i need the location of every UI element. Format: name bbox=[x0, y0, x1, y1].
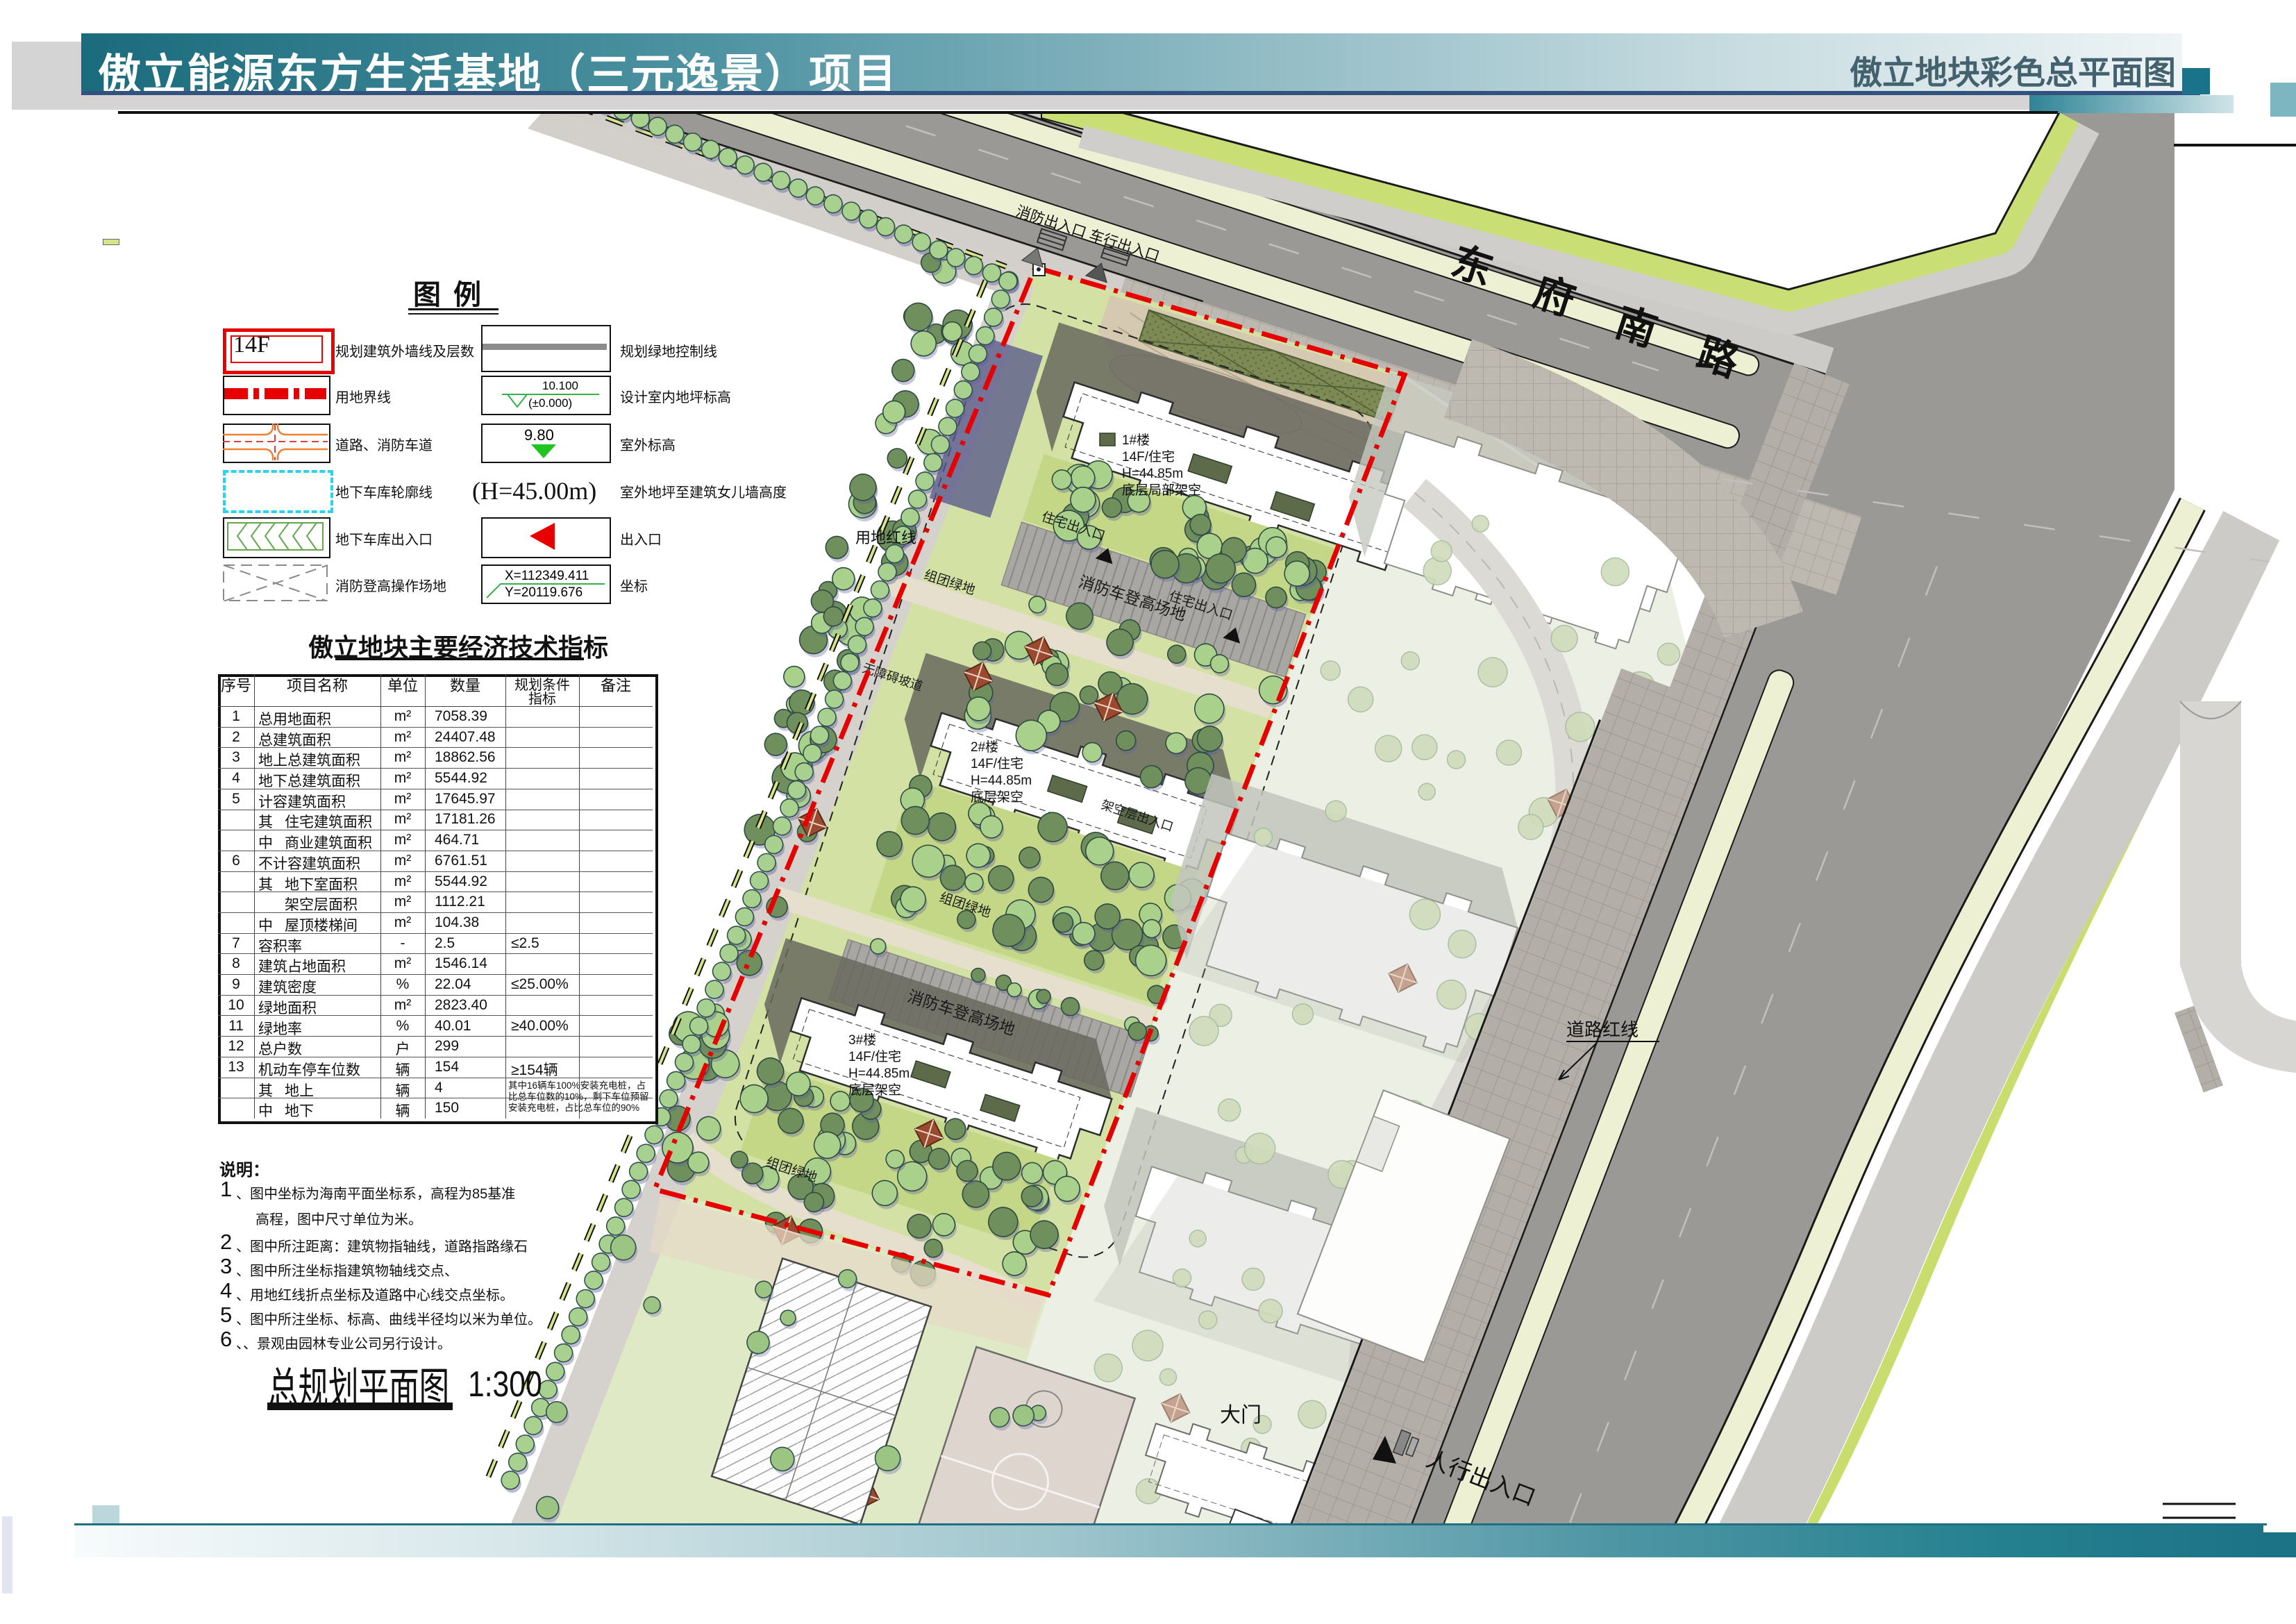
svg-text:14F/住宅: 14F/住宅 bbox=[848, 1049, 901, 1064]
svg-text:14F/住宅: 14F/住宅 bbox=[1122, 449, 1175, 464]
svg-text:大门: 大门 bbox=[1220, 1404, 1262, 1427]
svg-text:9.80: 9.80 bbox=[524, 426, 554, 444]
svg-text:X=112349.411: X=112349.411 bbox=[505, 569, 589, 583]
svg-text:2#楼: 2#楼 bbox=[971, 739, 998, 755]
svg-text:用地红线: 用地红线 bbox=[855, 529, 916, 546]
svg-text:(±0.000): (±0.000) bbox=[528, 396, 572, 410]
svg-text:14F/住宅: 14F/住宅 bbox=[971, 756, 1023, 771]
svg-text:底层架空: 底层架空 bbox=[971, 789, 1023, 805]
svg-text:底层局部架空: 底层局部架空 bbox=[1122, 483, 1201, 498]
svg-text:底层架空: 底层架空 bbox=[848, 1082, 901, 1098]
svg-text:10.100: 10.100 bbox=[542, 379, 578, 392]
svg-text:3#楼: 3#楼 bbox=[848, 1032, 876, 1048]
svg-text:1#楼: 1#楼 bbox=[1122, 433, 1150, 448]
svg-text:H=44.85m: H=44.85m bbox=[848, 1066, 910, 1081]
svg-text:H=44.85m: H=44.85m bbox=[1122, 467, 1183, 481]
svg-text:道路红线: 道路红线 bbox=[1566, 1019, 1639, 1040]
svg-text:Y=20119.676: Y=20119.676 bbox=[505, 585, 583, 600]
svg-text:H=44.85m: H=44.85m bbox=[971, 773, 1032, 788]
